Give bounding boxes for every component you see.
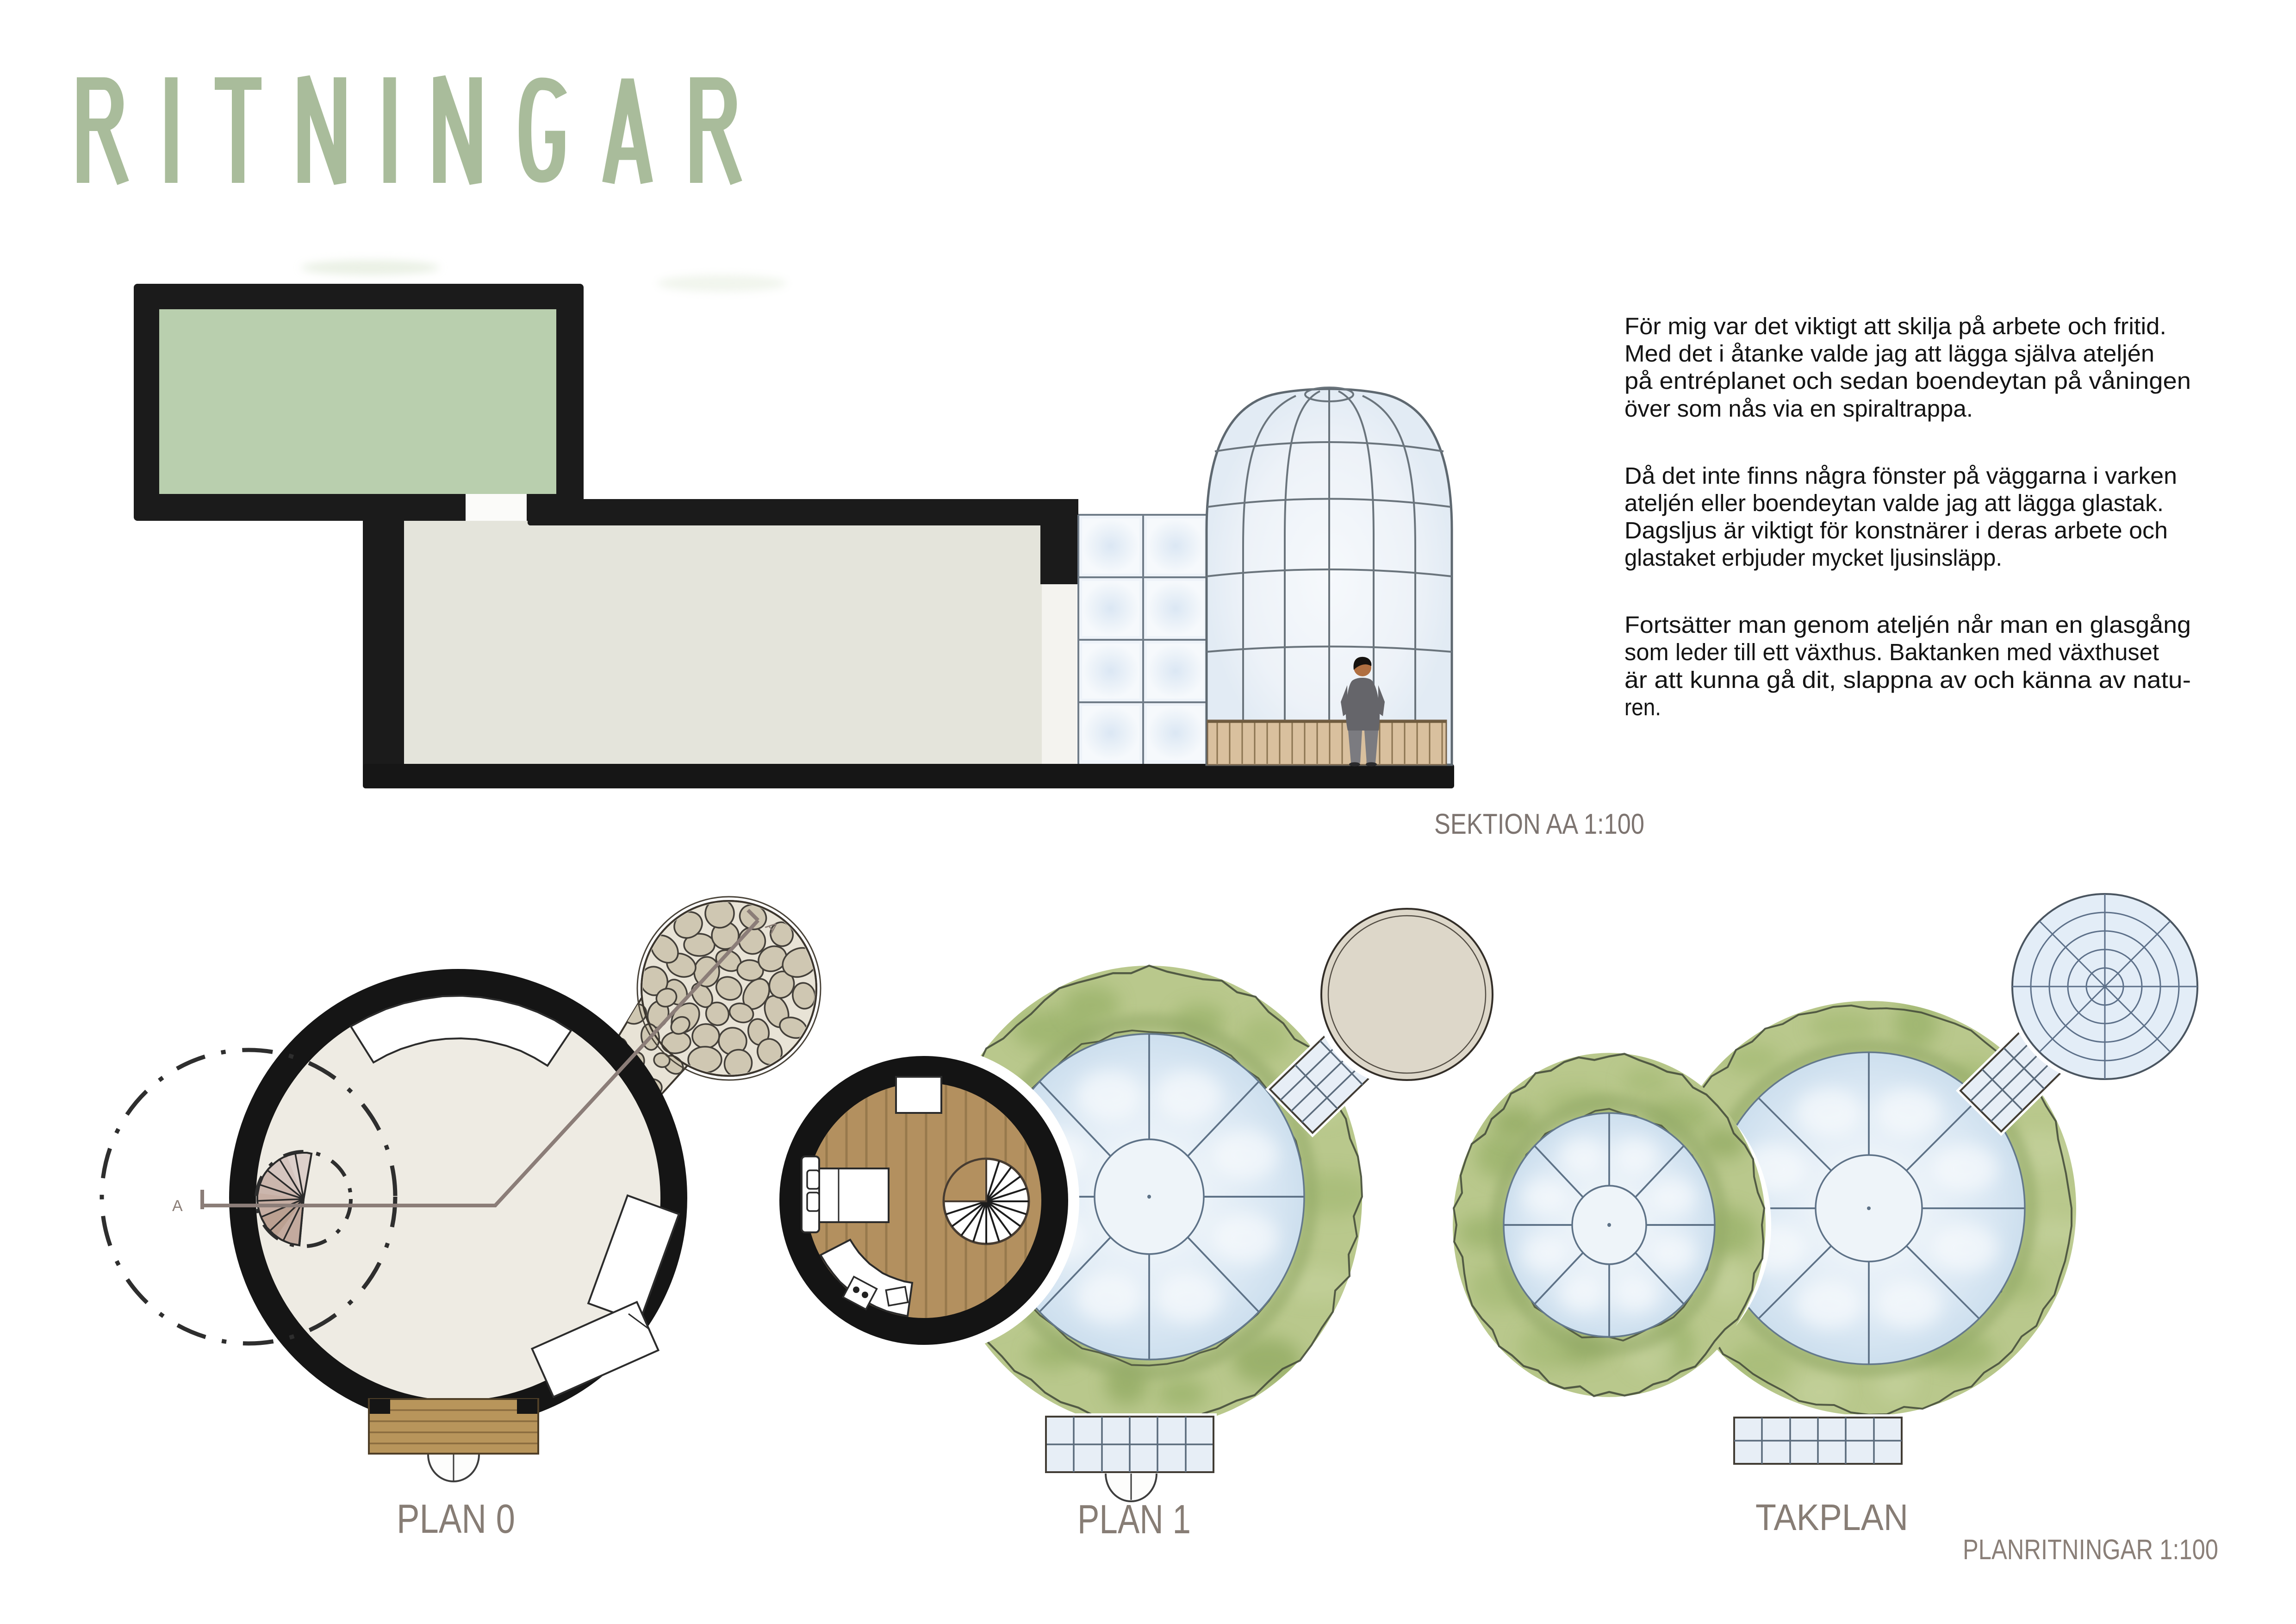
svg-text:SEKTION AA 1:100: SEKTION AA 1:100 bbox=[1434, 808, 1644, 840]
svg-text:ren.: ren. bbox=[1624, 694, 1661, 720]
svg-text:A: A bbox=[172, 1197, 183, 1215]
svg-text:Dagsljus är viktigt för konstn: Dagsljus är viktigt för konstnärer i der… bbox=[1624, 517, 2168, 543]
svg-text:PLAN 1: PLAN 1 bbox=[1077, 1496, 1191, 1542]
svg-text:Med det i åtanke valde jag att: Med det i åtanke valde jag att lägga sjä… bbox=[1624, 340, 2154, 367]
svg-text:glastaket erbjuder mycket ljus: glastaket erbjuder mycket ljusinsläpp. bbox=[1624, 544, 2002, 571]
svg-text:är att kunna gå dit, slappna a: är att kunna gå dit, slappna av och känn… bbox=[1624, 667, 2191, 693]
svg-text:ateljén eller boendeytan valde: ateljén eller boendeytan valde jag att l… bbox=[1624, 490, 2164, 516]
svg-text:som leder till ett växthus. Ba: som leder till ett växthus. Baktanken me… bbox=[1624, 639, 2159, 665]
svg-text:Fortsätter man genom ateljén n: Fortsätter man genom ateljén når man en … bbox=[1624, 612, 2191, 638]
svg-text:över som nås via en spiraltrap: över som nås via en spiraltrappa. bbox=[1624, 395, 1973, 422]
svg-text:PLANRITNINGAR 1:100: PLANRITNINGAR 1:100 bbox=[1963, 1534, 2218, 1565]
svg-text:på entréplanet och sedan boend: på entréplanet och sedan boendeytan på v… bbox=[1624, 368, 2191, 394]
svg-text:TAKPLAN: TAKPLAN bbox=[1755, 1497, 1908, 1538]
svg-text:PLAN 0: PLAN 0 bbox=[397, 1496, 515, 1542]
svg-text:Då det inte finns några fönste: Då det inte finns några fönster på vägga… bbox=[1624, 462, 2177, 489]
svg-text:För mig var det viktigt att sk: För mig var det viktigt att skilja på ar… bbox=[1624, 313, 2166, 339]
